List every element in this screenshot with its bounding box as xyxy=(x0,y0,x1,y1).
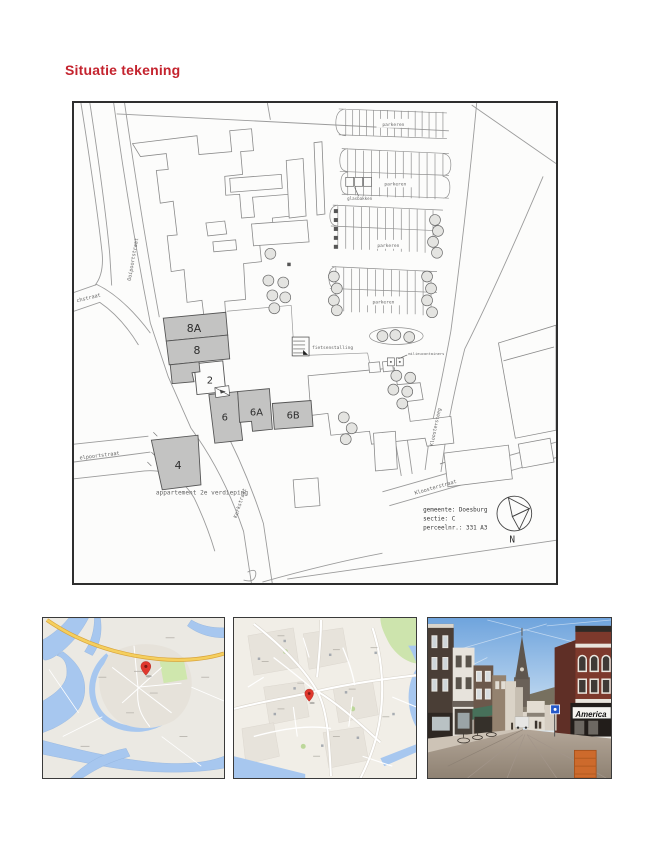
cadastre-gemeente: gemeente: Doesburg xyxy=(423,507,488,514)
plot-label-6a: 6A xyxy=(250,407,263,418)
site-plan-drawing: parkeren parkeren parkeren parkeren glas… xyxy=(74,103,556,583)
document-page: Situatie tekening xyxy=(0,0,646,849)
parking-labels: parkeren parkeren parkeren parkeren xyxy=(366,119,414,305)
orange-container xyxy=(574,750,596,778)
plot-label-6: 6 xyxy=(222,412,228,423)
waste-container-icons xyxy=(387,355,407,366)
parkeren-label: parkeren xyxy=(382,122,404,128)
fietsenstalling-label: fietsenstalling xyxy=(312,345,353,351)
glass-container-icons xyxy=(346,177,372,196)
site-plan-figure: parkeren parkeren parkeren parkeren glas… xyxy=(72,101,558,585)
street-label-chstraat: chstraat xyxy=(76,292,101,304)
plot-label-8a: 8A xyxy=(187,322,202,335)
bike-shed-icon xyxy=(292,337,309,356)
street-photo-thumbnail: America xyxy=(427,617,612,779)
street-label-elpoortstraat: elpoortstraat xyxy=(79,451,120,462)
cadastre-block: gemeente: Doesburg sectie: C perceelnr.:… xyxy=(423,507,488,532)
north-label: N xyxy=(509,534,515,545)
overview-map-thumbnail xyxy=(42,617,225,779)
plot-label-8: 8 xyxy=(194,344,201,357)
plot-label-2: 2 xyxy=(207,376,213,387)
milieucontainers-label: milieucontainers xyxy=(408,352,444,356)
parkeren-label: parkeren xyxy=(377,243,399,249)
photo-van xyxy=(515,717,529,729)
apartment-note-label: appartement 2e verdieping xyxy=(156,490,249,497)
shop-sign-text: America xyxy=(574,710,607,719)
street-photo: America xyxy=(428,618,611,778)
parkeren-label: parkeren xyxy=(372,299,394,305)
cadastre-perceel: perceelnr.: 331 A3 xyxy=(423,524,488,531)
parkeren-label: parkeren xyxy=(384,181,406,187)
cadastre-sectie: sectie: C xyxy=(423,516,456,523)
north-arrow-icon: N xyxy=(497,496,532,545)
detail-map-thumbnail xyxy=(233,617,417,779)
detail-map xyxy=(234,618,416,778)
plot-label-4: 4 xyxy=(175,459,182,472)
plot-label-6b: 6B xyxy=(287,410,300,421)
flag-marker-icon xyxy=(215,386,230,398)
glasbakken-label: glasbakken xyxy=(347,196,373,201)
page-title: Situatie tekening xyxy=(65,62,180,78)
overview-map xyxy=(43,618,224,778)
